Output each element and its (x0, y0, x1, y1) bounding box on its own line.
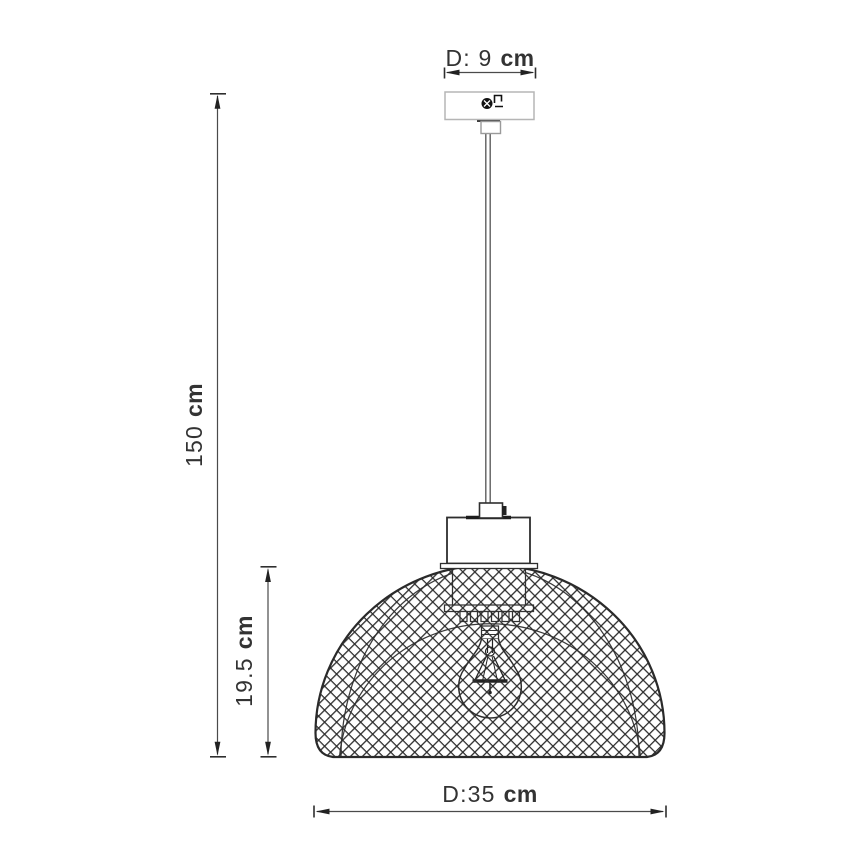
cord-connector-tab (502, 506, 507, 515)
arrowhead-top (215, 95, 221, 109)
ceiling-canopy (445, 92, 534, 120)
dim-shade-diameter: D:35cm (314, 781, 666, 818)
dimension-label: 150cm (181, 383, 207, 467)
cap-flange (441, 564, 538, 569)
dimension-label: D: 9cm (445, 45, 534, 71)
dim-total-height: 150cm (181, 94, 226, 757)
arrowhead-bottom (215, 742, 221, 756)
arrowhead-right (651, 809, 665, 815)
lamp-cap (447, 518, 530, 564)
arrowhead-bottom (265, 742, 271, 756)
mesh-dome-shade (316, 565, 665, 757)
lamp-dimension-diagram: D: 9cm 150cm 19.5cm D:35cm (0, 0, 868, 868)
cord-connector-bottom (480, 503, 503, 518)
diagram-canvas: D: 9cm 150cm 19.5cm D:35cm (0, 0, 868, 868)
cord-connector-top (481, 122, 501, 134)
dimension-label: D:35cm (442, 781, 537, 807)
arrowhead-left (316, 809, 330, 815)
arrowhead-top (265, 568, 271, 582)
dimension-label: 19.5cm (231, 615, 257, 707)
power-cord-assembly (477, 121, 507, 518)
mesh-pattern (316, 565, 665, 757)
dim-shade-height: 19.5cm (231, 567, 277, 757)
lamp-cap-assembly (441, 518, 538, 569)
dim-canopy-diameter: D: 9cm (445, 45, 536, 79)
power-cord (486, 133, 490, 503)
